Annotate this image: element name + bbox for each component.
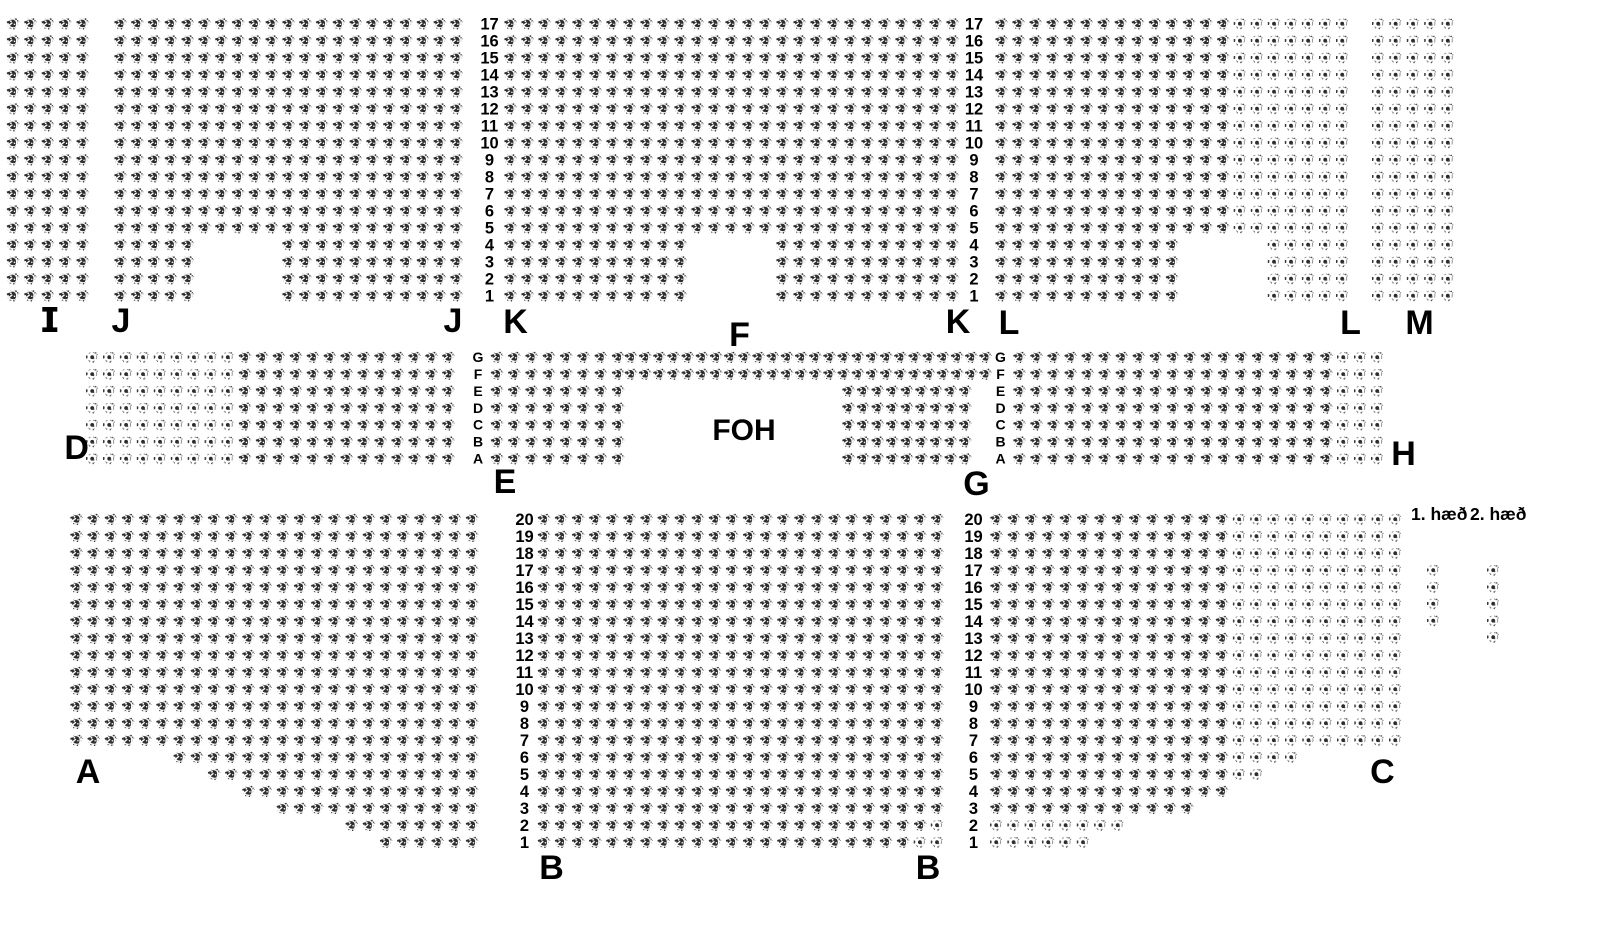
svg-text:12: 12	[965, 100, 983, 118]
svg-text:14: 14	[480, 66, 499, 84]
svg-text:G: G	[963, 465, 989, 503]
svg-text:17: 17	[515, 562, 533, 580]
svg-text:F: F	[474, 366, 483, 382]
svg-text:FOH: FOH	[712, 414, 775, 447]
svg-text:5: 5	[969, 219, 978, 237]
svg-text:G: G	[995, 349, 1006, 365]
svg-text:M: M	[1405, 304, 1433, 342]
svg-text:D: D	[473, 400, 483, 416]
svg-text:7: 7	[969, 732, 978, 750]
svg-text:10: 10	[965, 134, 983, 152]
svg-text:18: 18	[515, 545, 533, 563]
svg-text:11: 11	[516, 664, 533, 682]
svg-text:6: 6	[485, 202, 494, 220]
svg-text:15: 15	[965, 49, 983, 67]
svg-text:20: 20	[964, 511, 982, 529]
svg-text:12: 12	[515, 647, 533, 665]
svg-text:1: 1	[520, 834, 529, 852]
svg-text:B: B	[539, 849, 564, 887]
svg-text:10: 10	[480, 134, 498, 152]
svg-text:D: D	[995, 400, 1005, 416]
svg-text:8: 8	[969, 715, 978, 733]
svg-text:20: 20	[515, 511, 533, 529]
svg-text:K: K	[503, 303, 528, 341]
svg-text:11: 11	[481, 117, 498, 135]
svg-text:C: C	[995, 417, 1005, 433]
svg-text:E: E	[473, 383, 482, 399]
svg-text:2. hæð: 2. hæð	[1470, 504, 1526, 524]
svg-text:B: B	[473, 434, 483, 450]
svg-text:4: 4	[485, 236, 495, 254]
svg-text:10: 10	[515, 681, 533, 699]
svg-text:16: 16	[965, 32, 983, 50]
svg-text:17: 17	[964, 562, 982, 580]
svg-text:C: C	[473, 417, 483, 433]
svg-text:19: 19	[515, 528, 533, 546]
svg-text:2: 2	[969, 817, 978, 835]
svg-text:9: 9	[485, 151, 494, 169]
svg-text:5: 5	[520, 766, 529, 784]
svg-text:2: 2	[485, 270, 494, 288]
svg-text:A: A	[995, 451, 1005, 467]
svg-text:4: 4	[969, 236, 979, 254]
svg-text:15: 15	[515, 596, 533, 614]
svg-text:15: 15	[480, 49, 498, 67]
svg-text:10: 10	[964, 681, 982, 699]
svg-text:1: 1	[485, 287, 494, 305]
svg-text:14: 14	[964, 613, 983, 631]
svg-text:11: 11	[965, 664, 982, 682]
svg-text:7: 7	[520, 732, 529, 750]
svg-text:17: 17	[480, 15, 498, 33]
svg-text:8: 8	[969, 168, 978, 186]
svg-text:11: 11	[965, 117, 982, 135]
svg-text:9: 9	[969, 151, 978, 169]
svg-text:C: C	[1370, 753, 1395, 791]
svg-text:H: H	[1391, 435, 1416, 473]
svg-text:6: 6	[969, 749, 978, 767]
svg-text:E: E	[996, 383, 1005, 399]
svg-text:4: 4	[520, 783, 530, 801]
svg-text:9: 9	[520, 698, 529, 716]
svg-text:14: 14	[515, 613, 534, 631]
svg-text:A: A	[76, 753, 101, 791]
svg-text:16: 16	[480, 32, 498, 50]
svg-text:6: 6	[520, 749, 529, 767]
svg-text:6: 6	[969, 202, 978, 220]
svg-text:D: D	[64, 429, 89, 467]
svg-text:2: 2	[969, 270, 978, 288]
svg-text:8: 8	[520, 715, 529, 733]
svg-text:2: 2	[520, 817, 529, 835]
svg-text:1: 1	[969, 834, 978, 852]
svg-text:E: E	[494, 463, 517, 501]
svg-text:B: B	[995, 434, 1005, 450]
svg-text:5: 5	[485, 219, 494, 237]
svg-text:1. hæð: 1. hæð	[1411, 504, 1467, 524]
svg-text:16: 16	[964, 579, 982, 597]
svg-text:A: A	[473, 451, 483, 467]
svg-text:F: F	[729, 316, 750, 354]
svg-text:16: 16	[515, 579, 533, 597]
svg-text:13: 13	[515, 630, 533, 648]
svg-text:J: J	[444, 302, 463, 340]
svg-text:K: K	[946, 303, 971, 341]
svg-text:7: 7	[969, 185, 978, 203]
svg-text:13: 13	[965, 83, 983, 101]
svg-text:13: 13	[964, 630, 982, 648]
svg-text:9: 9	[969, 698, 978, 716]
svg-text:13: 13	[480, 83, 498, 101]
svg-text:5: 5	[969, 766, 978, 784]
svg-text:F: F	[996, 366, 1005, 382]
svg-text:G: G	[473, 349, 484, 365]
svg-text:12: 12	[480, 100, 498, 118]
svg-text:15: 15	[964, 596, 982, 614]
svg-text:12: 12	[964, 647, 982, 665]
svg-text:L: L	[1340, 304, 1361, 342]
svg-text:1: 1	[969, 287, 978, 305]
svg-text:7: 7	[485, 185, 494, 203]
svg-text:3: 3	[485, 253, 494, 271]
svg-text:19: 19	[964, 528, 982, 546]
svg-text:8: 8	[485, 168, 494, 186]
svg-text:17: 17	[965, 15, 983, 33]
svg-text:J: J	[112, 302, 131, 340]
svg-text:B: B	[916, 849, 941, 887]
svg-text:L: L	[999, 304, 1020, 342]
svg-text:3: 3	[969, 253, 978, 271]
svg-text:4: 4	[969, 783, 979, 801]
svg-text:3: 3	[969, 800, 978, 818]
svg-text:18: 18	[964, 545, 982, 563]
svg-text:14: 14	[965, 66, 984, 84]
svg-text:3: 3	[520, 800, 529, 818]
